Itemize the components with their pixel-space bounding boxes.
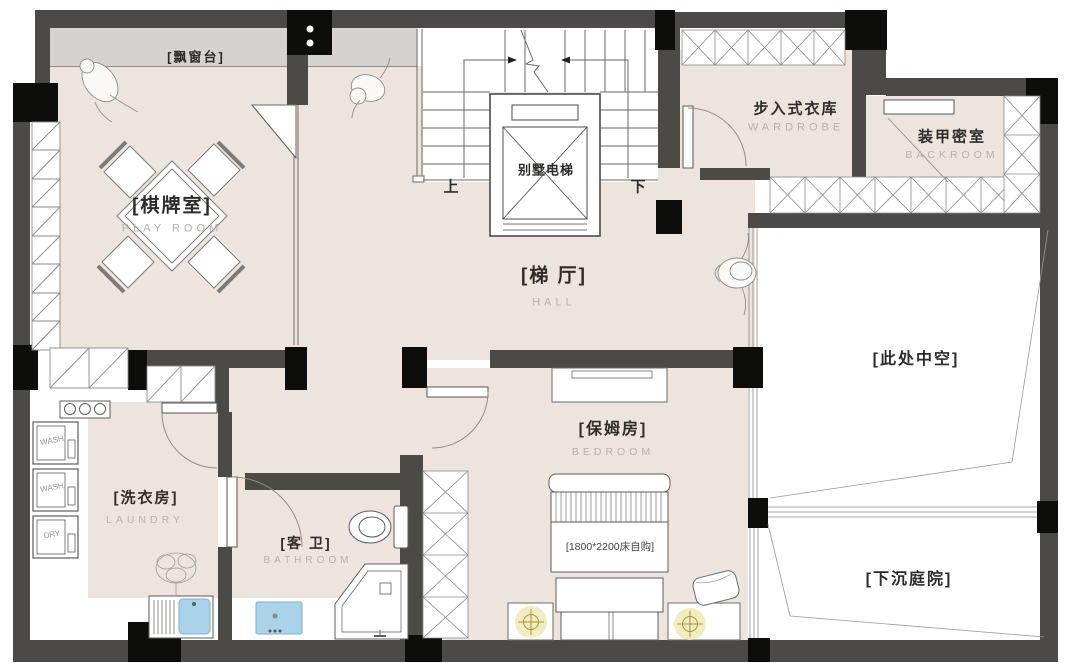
label-wardrobe-cn: 步入式衣库: [753, 102, 838, 117]
plant-icon: [156, 553, 196, 596]
label-bathroom-en: BATHROOM: [263, 556, 352, 566]
floor-plan-canvas: [飘窗台] [棋牌室] PLAY ROOM 别墅电梯 上 下 步入式衣库 WAR…: [0, 0, 1080, 663]
label-bed-note: [1800*2200床自购]: [566, 542, 654, 553]
toilet-icon: [349, 506, 408, 548]
label-void: [此处中空]: [873, 352, 960, 368]
label-backroom-cn: 装甲密室: [918, 130, 986, 145]
person-bay-window: [75, 55, 138, 122]
label-bedroom-cn: [保姆房]: [579, 422, 648, 438]
bedroom-wardrobe: [423, 471, 468, 638]
label-elevator: 别墅电梯: [518, 164, 574, 177]
label-bathroom-cn: [客 卫]: [280, 536, 331, 550]
wardrobe-south-cabinet: [770, 177, 1016, 213]
label-stair-up: 上: [443, 180, 460, 195]
laundry-north-cabinet: [147, 366, 215, 402]
playroom-south-cabinet: [50, 348, 128, 388]
label-bedroom-en: BEDROOM: [572, 447, 654, 458]
window-void-courtyard: [768, 507, 1037, 517]
nightstand-left: [508, 603, 553, 640]
window-bedroom-void: [749, 388, 757, 498]
label-backroom-en: BACKROOM: [905, 150, 998, 161]
label-stair-down: 下: [630, 180, 647, 195]
wardrobe-top-cabinet: [682, 30, 845, 65]
door-laundry: [162, 403, 217, 468]
column-marker-dots: [307, 26, 314, 47]
label-playroom-cn: [棋牌室]: [132, 197, 212, 216]
person-hall-dancer: [715, 233, 756, 315]
pillow-icon: [691, 569, 740, 607]
label-hall-en: HALL: [532, 298, 576, 309]
person-hall-top: [348, 58, 390, 118]
label-wardrobe-en: WARDROBE: [748, 123, 844, 134]
label-bay-window: [飘窗台]: [167, 51, 225, 64]
label-laundry-cn: [洗衣房]: [114, 491, 179, 506]
label-playroom-en: PLAY ROOM: [122, 224, 222, 235]
backroom-east-cabinet: [1004, 96, 1040, 213]
window-courtyard-west: [750, 528, 758, 638]
nightstand-right: [668, 603, 740, 640]
shower-icon: [335, 564, 408, 639]
door-bedroom: [427, 387, 488, 448]
window-hall-void: [749, 228, 757, 347]
bedroom-desk: [552, 368, 667, 402]
label-laundry-en: LAUNDRY: [106, 515, 184, 526]
door-wardrobe: [683, 106, 746, 168]
label-hall-cn: [梯 厅]: [521, 267, 587, 286]
bed: [549, 474, 670, 640]
label-courtyard: [下沉庭院]: [866, 572, 953, 588]
bathroom-sink: [256, 602, 302, 634]
laundry-sink: [149, 596, 213, 638]
playroom-west-cabinet: [32, 122, 60, 350]
playroom-partition: [252, 105, 298, 345]
